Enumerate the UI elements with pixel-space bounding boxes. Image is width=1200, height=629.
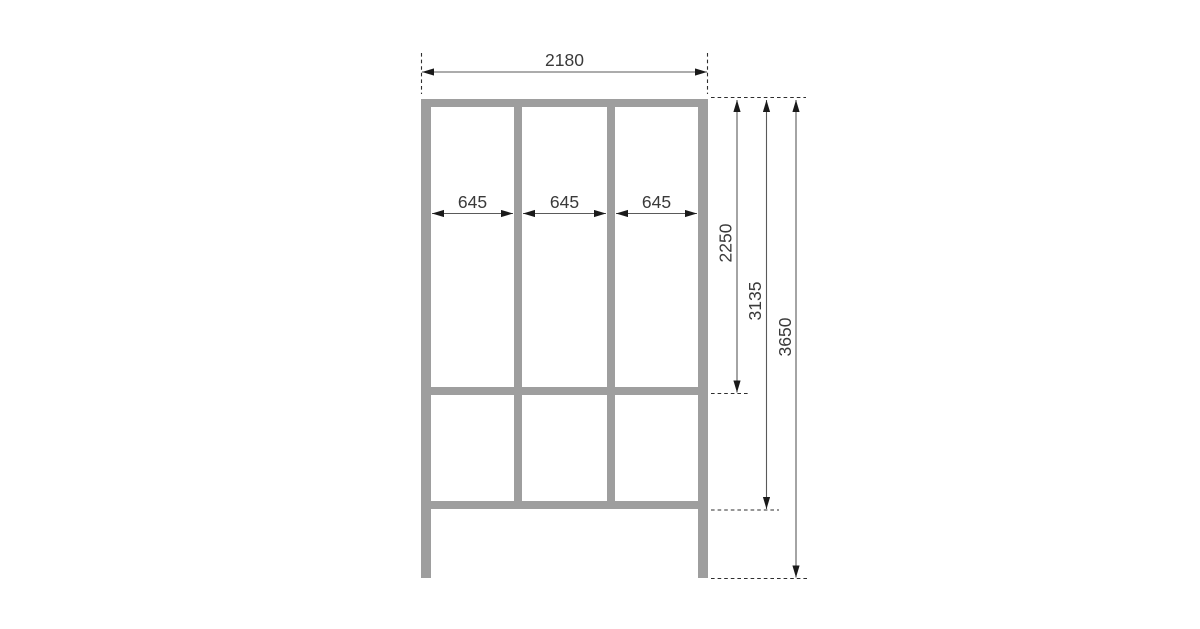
frame-bottom-rail [421,501,708,509]
dim-bay-width-1: 645 [432,192,513,214]
frame-right-leg [698,99,708,578]
frame-inner-post-1 [514,99,522,509]
dim-label-overall-height: 3650 [775,317,795,356]
dim-label-overall-width: 2180 [545,50,584,70]
dim-label-bay-3: 645 [642,192,671,212]
dim-bay-width-2: 645 [523,192,606,214]
drawing-canvas: 2180 645 645 645 2250 [0,0,1200,629]
dim-right-side: 2250 3135 3650 [711,98,808,579]
frame-top-rail [421,99,708,107]
dim-label-frame-height: 3135 [745,282,765,321]
dim-overall-width: 2180 [422,50,708,94]
frame [421,99,708,578]
dim-label-upper-section-height: 2250 [716,223,736,262]
technical-drawing: 2180 645 645 645 2250 [0,0,1200,629]
dim-label-bay-1: 645 [458,192,487,212]
frame-left-leg [421,99,431,578]
dim-frame-height: 3135 [711,100,779,510]
dim-label-bay-2: 645 [550,192,579,212]
dim-upper-section-height: 2250 [711,100,749,394]
dim-overall-height: 3650 [711,100,808,579]
dim-bay-width-3: 645 [616,192,697,214]
frame-middle-rail [421,387,708,395]
frame-inner-post-2 [607,99,615,509]
